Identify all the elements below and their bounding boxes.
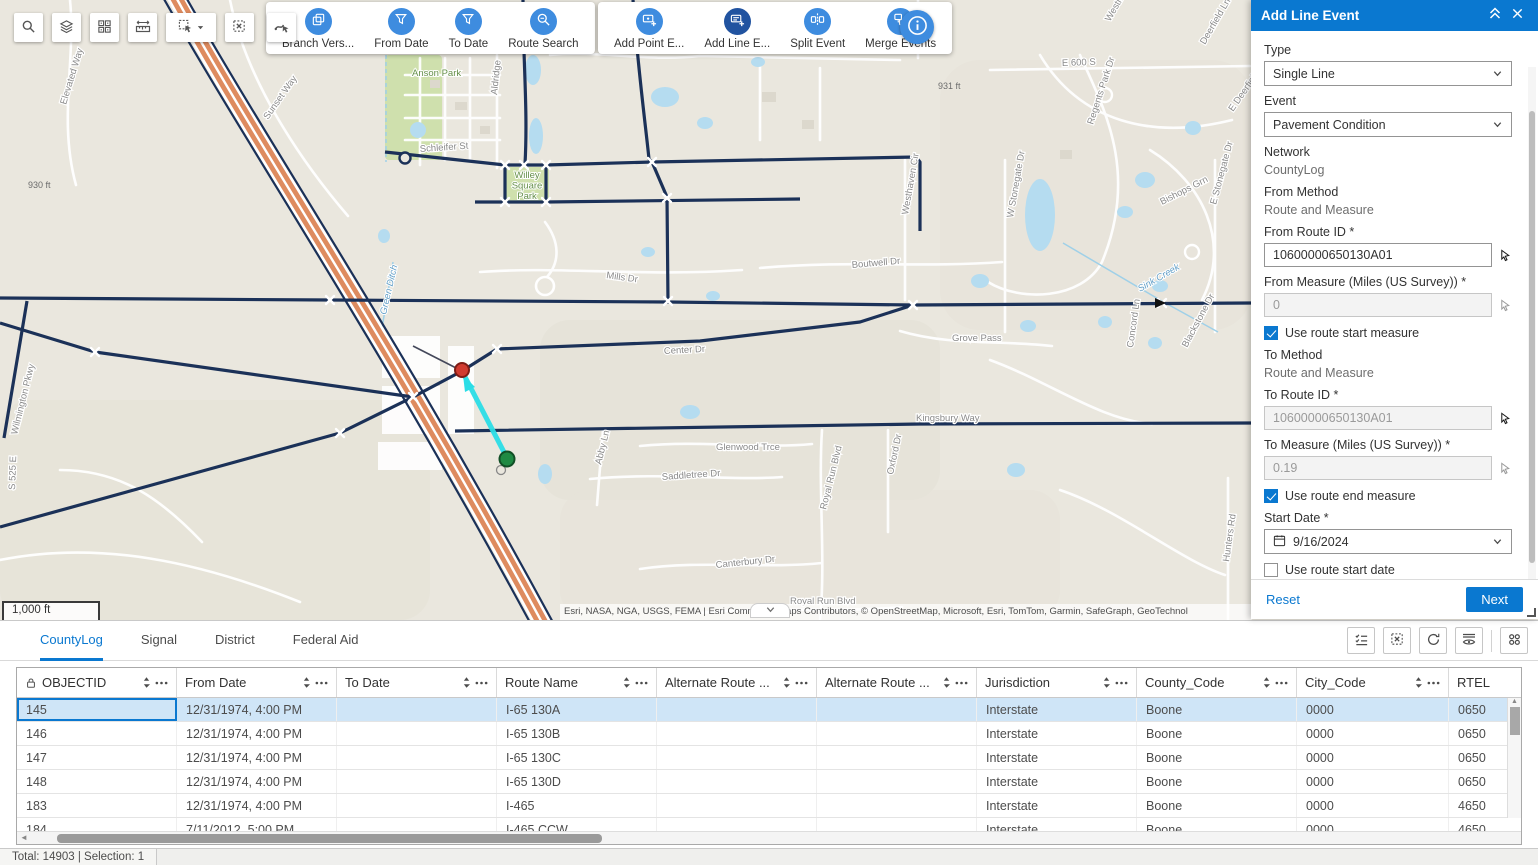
tool-label: To Date [449,38,489,50]
attribute-table-section: CountyLogSignalDistrictFederal Aid OBJEC… [0,620,1538,848]
calendar-icon [1273,534,1286,550]
basemap-grid-icon [97,19,112,37]
table-body: 14512/31/1974, 4:00 PMI-65 130AInterstat… [17,698,1521,831]
to-method-value: Route and Measure [1264,366,1512,380]
table-cell [817,722,977,745]
tool-to-date[interactable]: To Date [449,8,489,50]
selection-tools-card: Branch Vers...From DateTo DateRoute Sear… [266,2,595,54]
chevron-down-icon [1492,536,1503,547]
status-text: Total: 14903 | Selection: 1 [0,849,157,865]
table-vertical-scrollbar[interactable]: ▲ [1507,698,1521,818]
table-cell [817,794,977,817]
map-label: E 600 S [1062,57,1096,69]
pick-to-measure-on-map-button [1499,462,1512,475]
hscroll-left-arrow[interactable]: ◄ [20,833,28,842]
branch-versions-icon [311,12,326,32]
table-cell: 0000 [1297,794,1449,817]
table-cell [337,746,497,769]
add-point-event-icon [642,12,657,32]
route-search-icon [536,12,551,32]
to-measure-label: To Measure (Miles (US Survey)) * [1264,438,1512,452]
table-cell: 12/31/1974, 4:00 PM [177,698,337,721]
checkbox-icon [1264,563,1278,577]
event-label: Event [1264,94,1512,108]
from-route-id-input[interactable]: 10600000650130A01 [1264,243,1492,267]
table-cell: Interstate [977,794,1137,817]
table-hscroll-thumb[interactable] [57,834,602,843]
from-measure-label: From Measure (Miles (US Survey)) * [1264,275,1512,289]
tool-route-search[interactable]: Route Search [508,8,578,50]
tool-label: Split Event [790,38,845,50]
column-menu-icon[interactable] [955,681,968,685]
table-cell [337,722,497,745]
table-cell: 145 [17,698,177,721]
layers-tool-button[interactable] [52,13,81,42]
table-cell [817,770,977,793]
grid-options-icon [1507,632,1522,650]
event-tools-card: Add Point E...Add Line E...Split EventMe… [598,2,952,54]
table-cell: 0000 [1297,722,1449,745]
sort-icon[interactable] [1415,677,1422,688]
sort-icon[interactable] [1263,677,1270,688]
table-cell: 146 [17,722,177,745]
table-horizontal-scrollbar[interactable]: ◄ [17,831,1521,844]
table-cell: 184 [17,818,177,831]
table-toolbar [1347,627,1528,654]
show-selected-button[interactable] [1347,627,1375,654]
split-event-icon [810,12,825,32]
reset-button[interactable]: Reset [1266,592,1300,607]
next-button[interactable]: Next [1466,587,1523,612]
table-cell: I-465 [497,794,657,817]
table-cell: 0000 [1297,746,1449,769]
event-value: Pavement Condition [1273,118,1386,132]
network-label: Network [1264,145,1512,159]
add-line-event-icon [730,12,745,32]
table-cell: Boone [1137,746,1297,769]
panel-header: Add Line Event [1251,0,1538,31]
start-date-value: 9/16/2024 [1293,535,1349,549]
collapse-panel-button[interactable] [1484,5,1506,27]
table-cell [657,770,817,793]
sort-icon[interactable] [1103,677,1110,688]
table-cell [337,794,497,817]
column-label: City_Code [1305,675,1366,690]
from-method-value: Route and Measure [1264,203,1512,217]
column-menu-icon[interactable] [1275,681,1288,685]
use-route-start-measure-checkbox[interactable]: Use route start measure [1264,326,1512,340]
column-header-alternate-route[interactable]: Alternate Route ... [817,668,977,697]
table-cell [657,794,817,817]
tool-label: From Date [374,38,428,50]
table-row[interactable]: 14512/31/1974, 4:00 PMI-65 130AInterstat… [17,698,1521,722]
use-route-end-measure-checkbox[interactable]: Use route end measure [1264,489,1512,503]
table-cell: 0000 [1297,698,1449,721]
column-menu-icon[interactable] [475,681,488,685]
table-cell: Interstate [977,818,1137,831]
clear-selection-tool-button[interactable] [225,13,254,42]
table-vscroll-thumb[interactable] [1510,707,1520,735]
clear-table-selection-icon [1390,632,1405,650]
table-cell [337,770,497,793]
refresh-button[interactable] [1419,627,1447,654]
table-row[interactable]: 14812/31/1974, 4:00 PMI-65 130DInterstat… [17,770,1521,794]
close-panel-button[interactable] [1506,5,1528,27]
table-tabs: CountyLogSignalDistrictFederal Aid [0,621,1538,661]
table-cell: Interstate [977,770,1137,793]
info-icon [907,15,928,39]
sort-icon[interactable] [303,677,310,688]
table-cell [817,818,977,831]
to-method-label: To Method [1264,348,1512,362]
use-route-start-date-checkbox[interactable]: Use route start date [1264,563,1512,577]
panel-footer: Reset Next [1251,579,1538,619]
search-tool-button[interactable] [14,13,43,42]
table-row[interactable]: 18312/31/1974, 4:00 PMI-465InterstateBoo… [17,794,1521,818]
sort-icon[interactable] [623,677,630,688]
chevron-down-icon [1492,119,1503,130]
select-tool-button[interactable] [166,13,216,42]
map-tools-toolbar [14,13,296,42]
table-cell: I-465 CCW [497,818,657,831]
sort-icon[interactable] [783,677,790,688]
select-events-tool-button[interactable] [267,13,296,42]
checkbox-label: Use route end measure [1285,489,1416,503]
column-header-objectid[interactable]: OBJECTID [17,668,177,697]
pick-to-route-on-map-button[interactable] [1499,412,1512,425]
lock-icon [25,677,37,689]
refresh-icon [1426,632,1441,650]
column-header-rtel[interactable]: RTEL [1449,668,1521,697]
checkbox-icon [1264,326,1278,340]
table-cell: 7/11/2012, 5:00 PM [177,818,337,831]
to-measure-input: 0.19 [1264,456,1492,480]
column-label: RTEL [1457,675,1490,690]
table-cell: 0000 [1297,770,1449,793]
table-cell: 4650 [1449,818,1521,831]
table-cell [337,698,497,721]
table-cell [657,818,817,831]
table-cell: 147 [17,746,177,769]
map-label: Anson Park [412,68,461,79]
panel-resize-handle[interactable] [1527,608,1536,617]
chevron-down-icon [1492,68,1503,79]
map-label: S 525 E [7,456,19,490]
tool-split-event[interactable]: Split Event [790,8,845,50]
table-row[interactable]: 14612/31/1974, 4:00 PMI-65 130BInterstat… [17,722,1521,746]
map-label: Kingsbury Way [916,413,980,424]
table-cell [817,746,977,769]
measure-icon [135,18,151,37]
tool-label: Add Point E... [614,38,684,50]
map-attribution: Esri, NASA, NGA, USGS, FEMA | Esri Commu… [560,604,1252,620]
table-cell [657,746,817,769]
tool-label: Route Search [508,38,578,50]
status-bar: Total: 14903 | Selection: 1 [0,848,1538,865]
to-route-id-label: To Route ID * [1264,388,1512,402]
table-cell: I-65 130C [497,746,657,769]
event-select[interactable]: Pavement Condition [1264,112,1512,137]
from-route-id-label: From Route ID * [1264,225,1512,239]
table-cell: 12/31/1974, 4:00 PM [177,770,337,793]
table-cell: 12/31/1974, 4:00 PM [177,722,337,745]
table-row[interactable]: 14712/31/1974, 4:00 PMI-65 130CInterstat… [17,746,1521,770]
column-header-jurisdiction[interactable]: Jurisdiction [977,668,1137,697]
from-measure-input: 0 [1264,293,1492,317]
panel-title: Add Line Event [1261,8,1484,23]
column-header-from-date[interactable]: From Date [177,668,337,697]
tab-federal-aid[interactable]: Federal Aid [293,621,359,661]
double-chevron-up-icon [1488,6,1502,25]
show-selected-icon [1354,632,1369,650]
hide-columns-button[interactable] [1455,627,1483,654]
identify-info-button[interactable] [900,10,934,44]
map-label: 931 ft [938,81,961,91]
type-select[interactable]: Single Line [1264,61,1512,86]
magnifier-icon [21,19,36,37]
checkbox-label: Use route start date [1285,563,1395,577]
hide-columns-icon [1461,631,1477,650]
column-menu-icon[interactable] [155,681,168,685]
column-label: Jurisdiction [985,675,1050,690]
sort-icon[interactable] [943,677,950,688]
tool-add-point-e[interactable]: Add Point E... [614,8,684,50]
route-end-marker [500,452,515,467]
column-label: Alternate Route ... [665,675,770,690]
attribute-table: OBJECTIDFrom DateTo DateRoute NameAltern… [16,667,1522,845]
map-label: Grove Pass [952,333,1002,344]
from-method-label: From Method [1264,185,1512,199]
attribution-collapse-button[interactable] [750,603,790,618]
table-cell: 148 [17,770,177,793]
map-label: 930 ft [28,180,51,190]
measure-tool-button[interactable] [128,13,157,42]
type-label: Type [1264,43,1512,57]
panel-scrollbar[interactable] [1528,67,1536,579]
scale-bar: 1,000 ft [2,601,100,620]
clear-selection-icon [232,19,247,37]
table-cell [657,698,817,721]
table-cell [817,698,977,721]
table-cell: Boone [1137,770,1297,793]
column-header-county-code[interactable]: County_Code [1137,668,1297,697]
map-label: Glenwood Trce [716,442,780,453]
table-cell: Interstate [977,698,1137,721]
column-menu-icon[interactable] [1115,681,1128,685]
column-menu-icon[interactable] [635,681,648,685]
start-date-input[interactable]: 9/16/2024 [1264,529,1512,554]
network-value: CountyLog [1264,163,1512,177]
table-cell: Interstate [977,722,1137,745]
table-cell: 12/31/1974, 4:00 PM [177,794,337,817]
add-line-event-panel: Add Line Event Type Single Line Event Pa… [1251,0,1538,619]
table-cell: Interstate [977,746,1137,769]
column-header-city-code[interactable]: City_Code [1297,668,1449,697]
column-label: From Date [185,675,246,690]
column-label: County_Code [1145,675,1225,690]
column-menu-icon[interactable] [1427,681,1440,685]
sort-icon[interactable] [463,677,470,688]
filter-icon [394,12,408,31]
sort-icon[interactable] [143,677,150,688]
column-label: To Date [345,675,390,690]
table-cell: I-65 130A [497,698,657,721]
tab-countylog[interactable]: CountyLog [40,621,103,661]
column-header-to-date[interactable]: To Date [337,668,497,697]
layers-icon [59,19,74,37]
table-cell: 183 [17,794,177,817]
pick-from-route-on-map-button[interactable] [1499,249,1512,262]
column-header-route-name[interactable]: Route Name [497,668,657,697]
table-cell: Boone [1137,818,1297,831]
tab-signal[interactable]: Signal [141,621,177,661]
column-label: Route Name [505,675,578,690]
clear-table-selection-button[interactable] [1383,627,1411,654]
select-cursor-icon [178,19,193,37]
table-cell [657,722,817,745]
table-cell [337,818,497,831]
route-cursor-icon [274,18,290,37]
table-cell: I-65 130D [497,770,657,793]
table-cell: 0000 [1297,818,1449,831]
panel-body: Type Single Line Event Pavement Conditio… [1251,31,1538,579]
to-route-id-input: 10600000650130A01 [1264,406,1492,430]
table-cell: Boone [1137,722,1297,745]
start-date-label: Start Date * [1264,511,1512,525]
tool-add-line-e[interactable]: Add Line E... [704,8,770,50]
tool-label: Add Line E... [704,38,770,50]
caret-down-icon [196,20,205,35]
column-menu-icon[interactable] [315,681,328,685]
grid-options-button[interactable] [1500,627,1528,654]
filter-icon [461,12,475,31]
table-cell: 12/31/1974, 4:00 PM [177,746,337,769]
column-label: Alternate Route ... [825,675,930,690]
column-header-alternate-route[interactable]: Alternate Route ... [657,668,817,697]
table-row[interactable]: 1847/11/2012, 5:00 PMI-465 CCWInterstate… [17,818,1521,831]
table-header-row: OBJECTIDFrom DateTo DateRoute NameAltern… [17,668,1521,698]
chevron-down-icon [765,602,776,620]
checkbox-icon [1264,489,1278,503]
pick-from-measure-on-map-button [1499,299,1512,312]
column-label: OBJECTID [42,675,106,690]
tool-from-date[interactable]: From Date [374,8,428,50]
checkbox-label: Use route start measure [1285,326,1419,340]
map-label: Center Dr [664,344,706,357]
table-cell: Boone [1137,794,1297,817]
type-value: Single Line [1273,67,1335,81]
panel-scrollbar-thumb[interactable] [1529,111,1535,563]
route-start-marker [455,363,469,377]
toolbar-divider [1491,630,1492,652]
table-cell: Boone [1137,698,1297,721]
table-cell: I-65 130B [497,722,657,745]
tab-district[interactable]: District [215,621,255,661]
column-menu-icon[interactable] [795,681,808,685]
close-icon [1511,7,1524,25]
basemap-tool-button[interactable] [90,13,119,42]
